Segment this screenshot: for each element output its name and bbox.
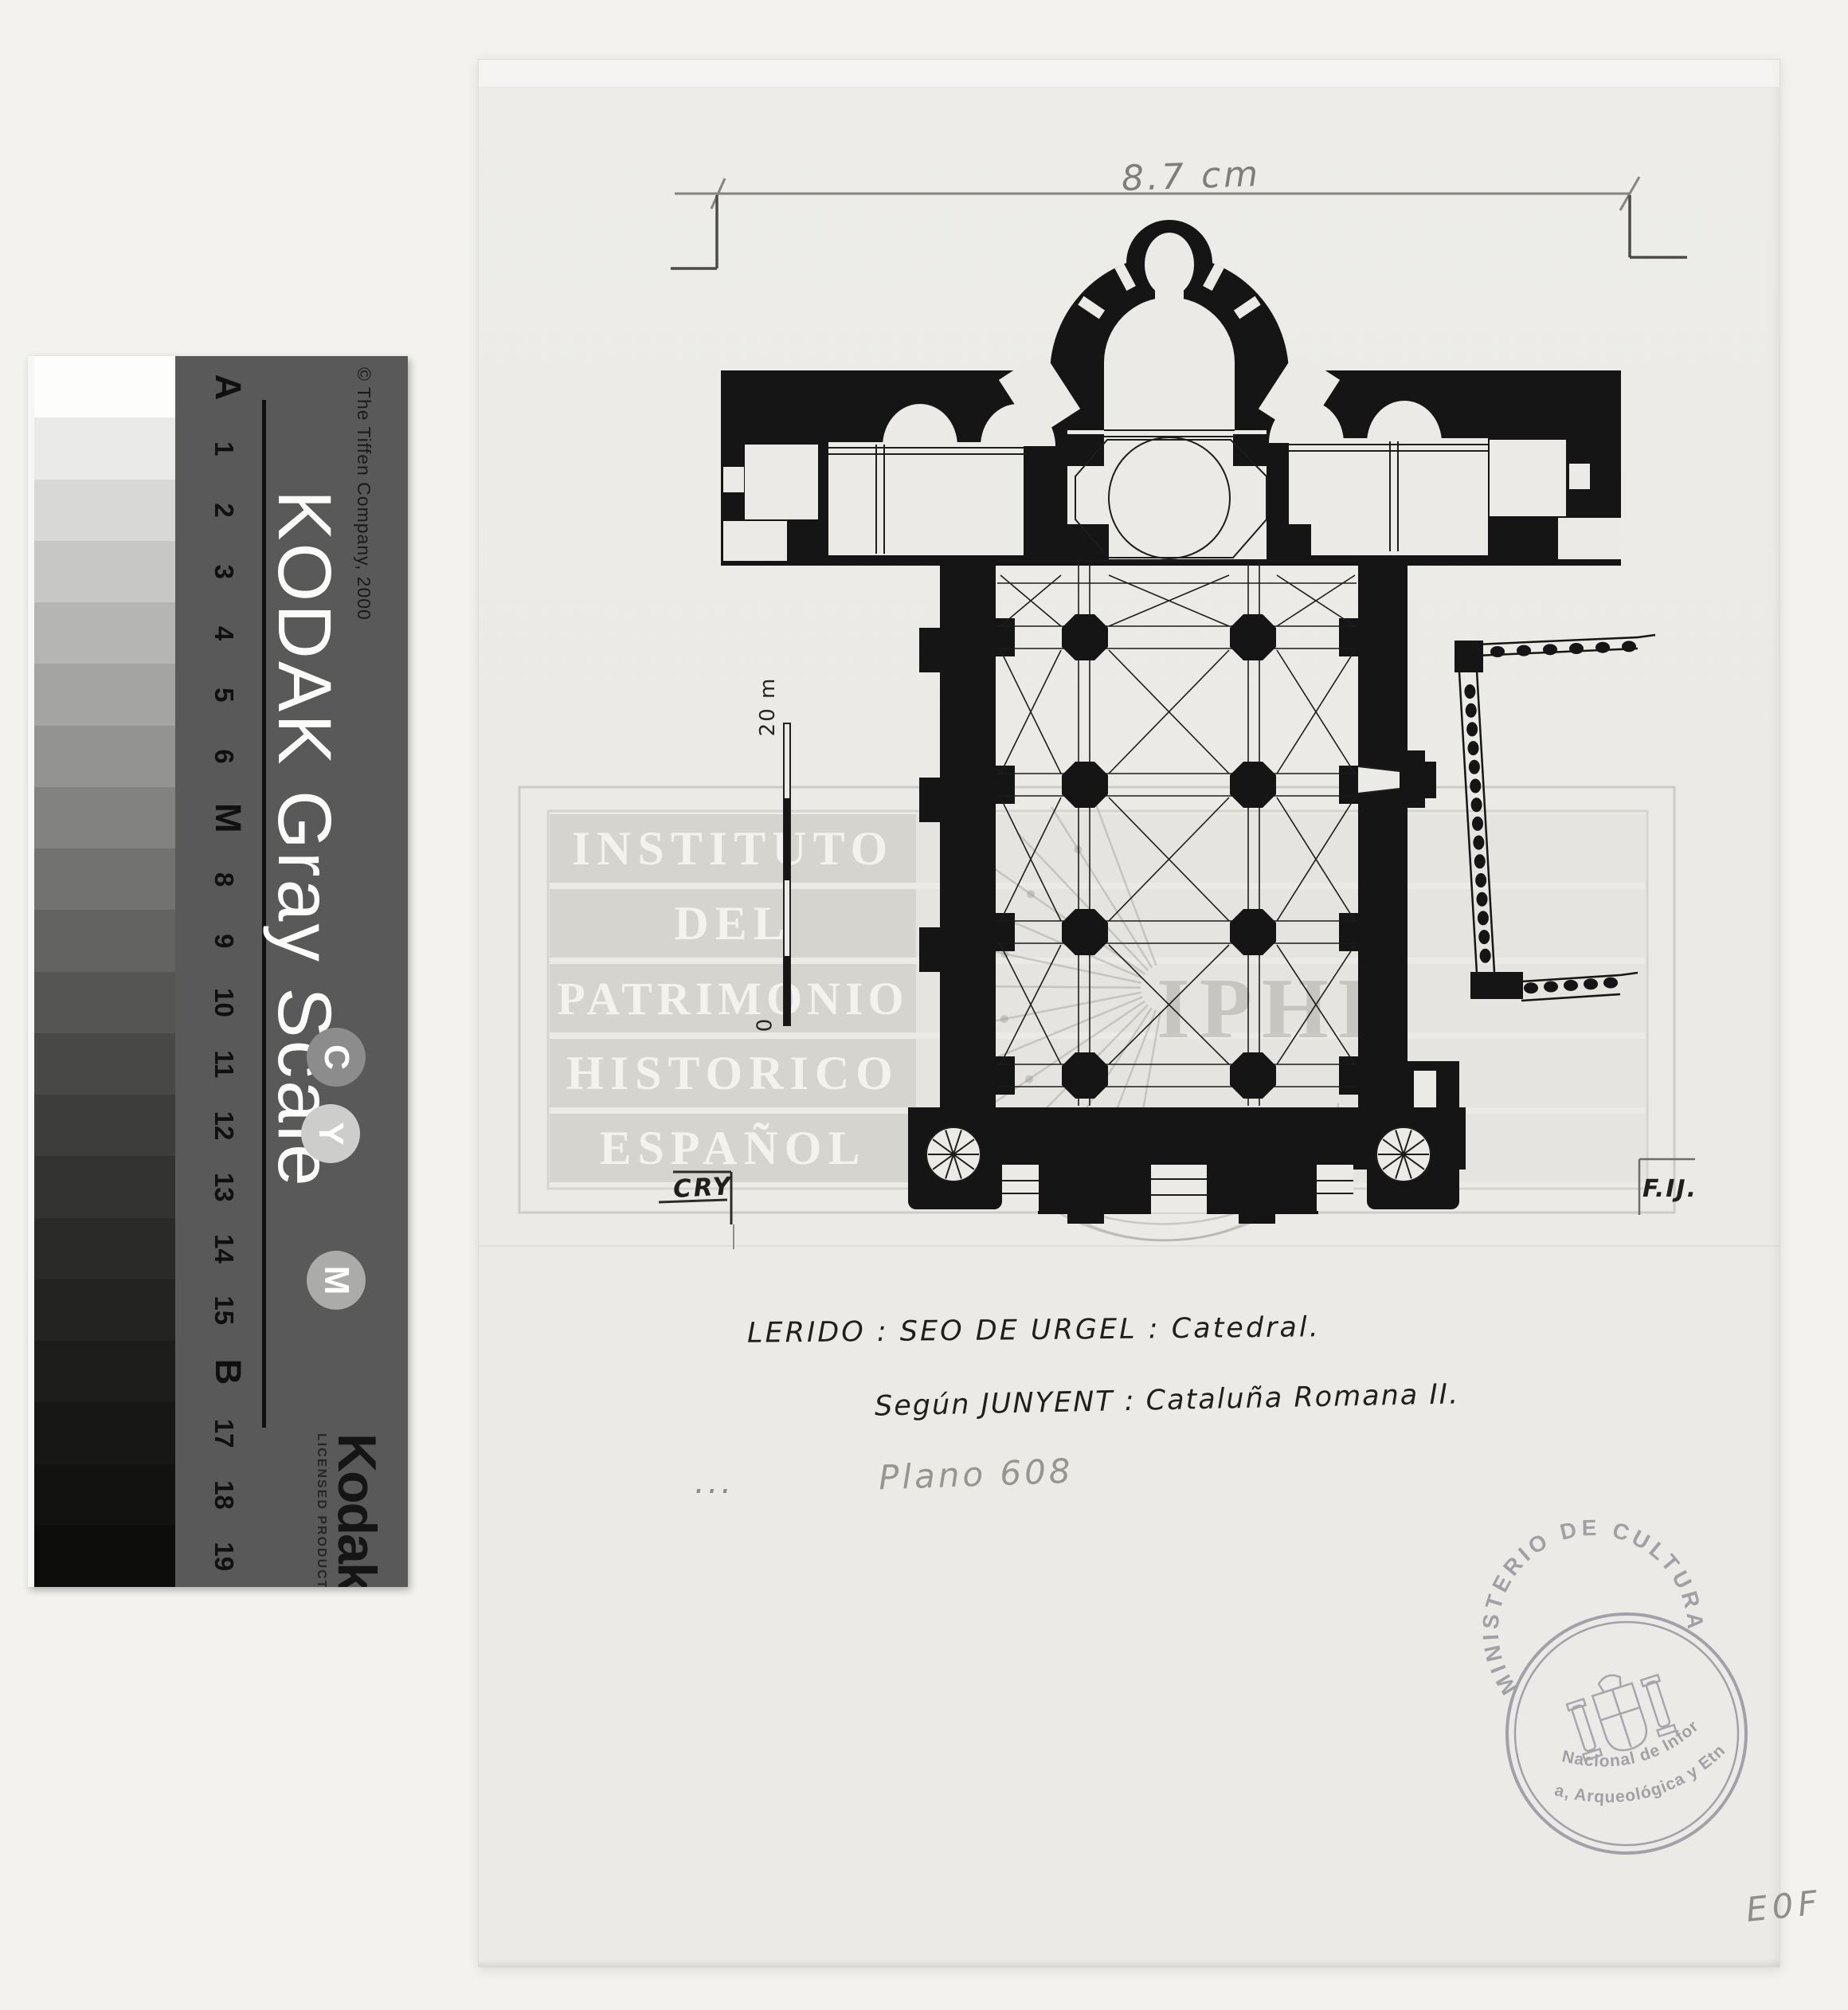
watermark-band-2: DEL bbox=[550, 889, 916, 958]
gray-patch bbox=[34, 1402, 175, 1463]
plan-title-line1: LERIDO : SEO DE URGEL : Catedral. bbox=[747, 1311, 1321, 1350]
watermark-word: DEL bbox=[674, 896, 791, 951]
gray-patch bbox=[34, 726, 175, 787]
paper-crease bbox=[479, 1245, 1779, 1247]
gray-patch bbox=[34, 1526, 175, 1587]
step-label: 3 bbox=[209, 541, 239, 603]
cmy-circle-y: Y bbox=[301, 1104, 360, 1163]
scanned-archive-page: INSTITUTO DEL PATRIMONIO HISTORICO ESPAÑ… bbox=[0, 0, 1848, 2010]
step-label: 2 bbox=[209, 480, 239, 542]
cmy-circle-m: M bbox=[307, 1251, 366, 1310]
gray-patch bbox=[34, 480, 175, 541]
step-label: 10 bbox=[209, 972, 239, 1034]
step-label: 11 bbox=[209, 1033, 239, 1095]
watermark-band-5: ESPAÑOL bbox=[550, 1114, 916, 1182]
step-label: 19 bbox=[209, 1526, 239, 1587]
step-label: 8 bbox=[209, 848, 239, 911]
gray-patch bbox=[34, 1095, 175, 1156]
gray-patch bbox=[34, 1464, 175, 1526]
reviewer-initials-left: CRY bbox=[672, 1172, 734, 1204]
gray-patch bbox=[34, 1033, 175, 1095]
gray-patch bbox=[34, 1218, 175, 1279]
gray-patch bbox=[34, 664, 175, 725]
kodak-gray-scale-strip: © The Tiffen Company, 2000 KODAK Gray Sc… bbox=[28, 356, 408, 1587]
reviewer-initials-right: F.IJ. bbox=[1642, 1175, 1697, 1203]
gray-patch bbox=[34, 787, 175, 848]
watermark-band-1: INSTITUTO bbox=[550, 814, 916, 883]
step-label: 17 bbox=[209, 1402, 239, 1464]
watermark-band-3: PATRIMONIO bbox=[550, 964, 916, 1032]
step-label: 4 bbox=[209, 602, 239, 664]
gray-patch bbox=[34, 848, 175, 910]
gray-patch bbox=[34, 1279, 175, 1341]
watermark-word: HISTORICO bbox=[566, 1046, 899, 1101]
gray-patch bbox=[34, 602, 175, 664]
pencil-dots: ... bbox=[695, 1464, 734, 1501]
kodak-logo: Kodak LICENSED PRODUCT bbox=[314, 1425, 384, 1587]
scale-bar-top-label: 20 m bbox=[756, 672, 780, 741]
paper-fold bbox=[479, 60, 1779, 88]
step-label: 12 bbox=[209, 1095, 239, 1157]
gray-patch bbox=[34, 1156, 175, 1217]
watermark-word: INSTITUTO bbox=[572, 821, 894, 876]
cmy-circle-c: C bbox=[307, 1028, 366, 1087]
step-label: B bbox=[207, 1341, 249, 1403]
paper-bottom-shadow bbox=[479, 1959, 1779, 1967]
watermark-band-4: HISTORICO bbox=[550, 1039, 916, 1107]
strip-title: KODAK Gray Scale bbox=[267, 476, 341, 1203]
strip-label-area: © The Tiffen Company, 2000 KODAK Gray Sc… bbox=[175, 356, 408, 1587]
gray-patch bbox=[34, 356, 175, 417]
kodak-logo-text: Kodak bbox=[327, 1433, 387, 1587]
watermark-word: PATRIMONIO bbox=[557, 972, 908, 1025]
step-label: 9 bbox=[209, 910, 239, 972]
scale-bar-zero-label: 0 bbox=[753, 1019, 777, 1032]
watermark-word: ESPAÑOL bbox=[600, 1121, 867, 1176]
gray-patch bbox=[34, 541, 175, 602]
dimension-label: 8.7 cm bbox=[1121, 154, 1262, 199]
gray-patch bbox=[34, 417, 175, 479]
corner-inventory-code: E0F bbox=[1744, 1883, 1824, 1930]
kodak-licensed-text: LICENSED PRODUCT bbox=[314, 1433, 328, 1587]
gray-patch bbox=[34, 910, 175, 971]
step-label: 18 bbox=[209, 1464, 239, 1526]
gray-patch bbox=[34, 1341, 175, 1402]
step-label: A bbox=[207, 356, 249, 418]
gray-patches bbox=[28, 356, 175, 1587]
step-label: 1 bbox=[209, 417, 239, 480]
strip-copyright: © The Tiffen Company, 2000 bbox=[353, 367, 374, 621]
plan-number: Plano 608 bbox=[878, 1452, 1074, 1498]
step-label: 5 bbox=[209, 664, 239, 726]
step-label: 6 bbox=[209, 726, 239, 788]
step-label: 15 bbox=[209, 1279, 239, 1342]
step-label: 13 bbox=[209, 1156, 239, 1218]
step-label: 14 bbox=[209, 1218, 239, 1280]
step-label: M bbox=[207, 787, 249, 849]
gray-patch bbox=[34, 972, 175, 1033]
